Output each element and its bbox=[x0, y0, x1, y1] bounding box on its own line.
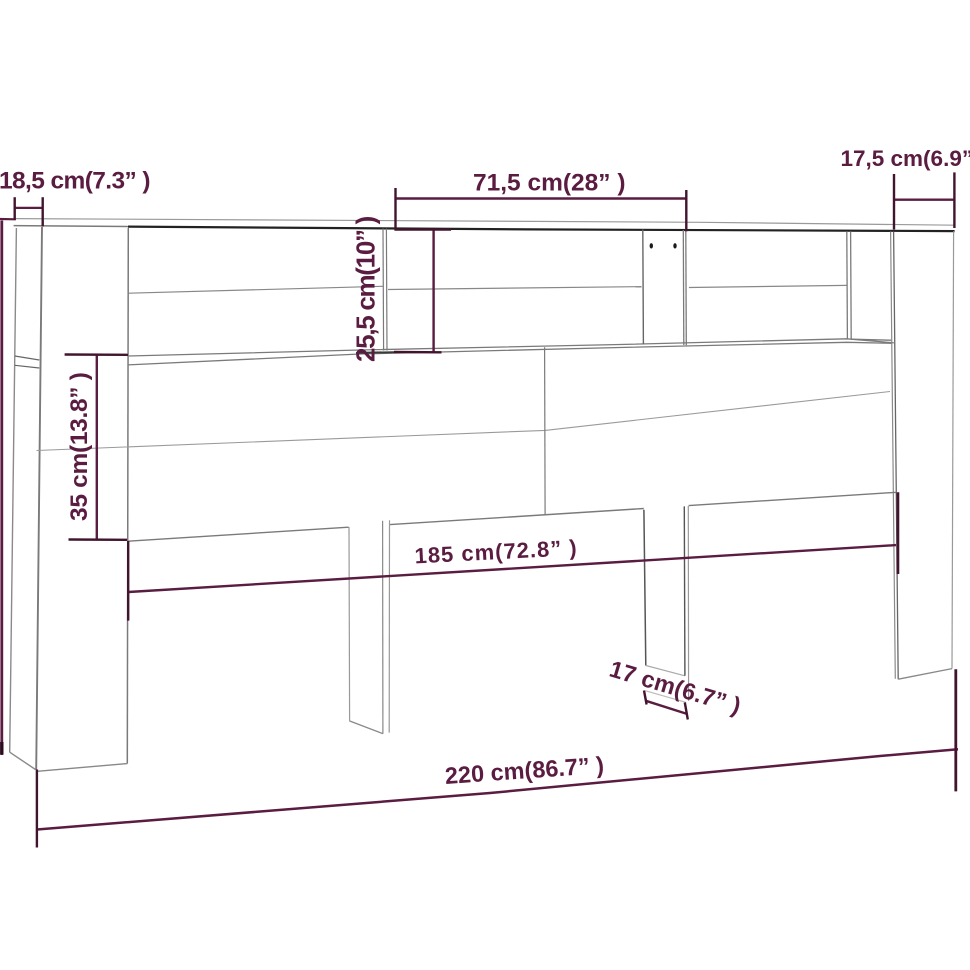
svg-text:185 cm(72.8” ): 185 cm(72.8” ) bbox=[414, 535, 578, 569]
svg-text:35 cm(13.8” ): 35 cm(13.8” ) bbox=[66, 372, 93, 521]
svg-text:17,5 cm(6.9”: 17,5 cm(6.9” bbox=[841, 146, 970, 171]
svg-text:18,5 cm(7.3” ): 18,5 cm(7.3” ) bbox=[0, 168, 150, 195]
svg-text:71,5 cm(28” ): 71,5 cm(28” ) bbox=[473, 169, 626, 196]
svg-text:25,5 cm(10” ): 25,5 cm(10” ) bbox=[351, 216, 381, 362]
